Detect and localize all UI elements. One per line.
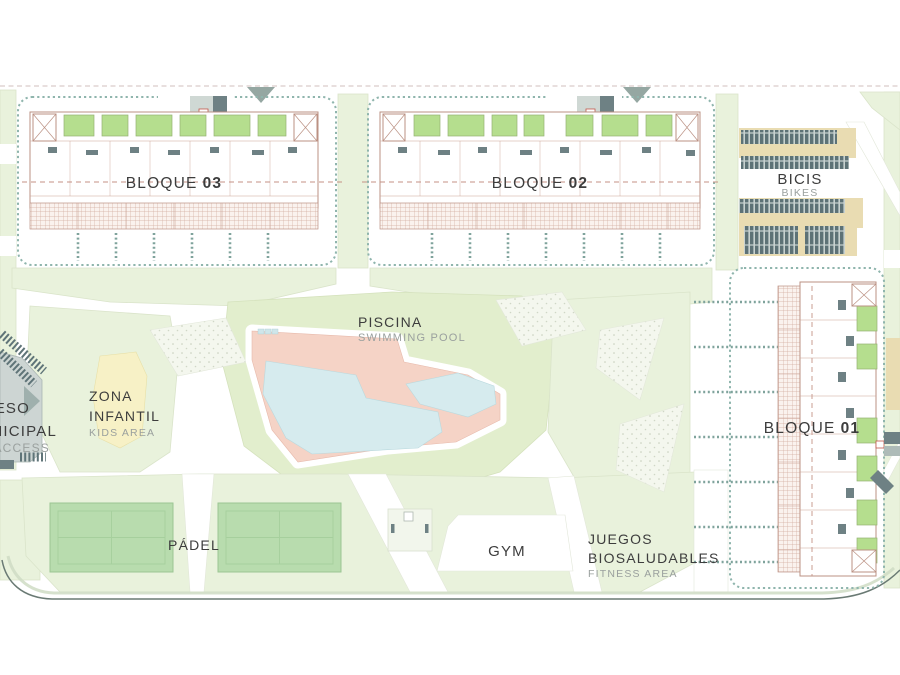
label-padel: PÁDEL <box>168 537 220 553</box>
entrance-core <box>213 96 227 114</box>
equipment-icon <box>425 524 429 533</box>
label-bloque-02: BLOQUE02 <box>492 175 588 192</box>
lawn-patch <box>338 94 368 268</box>
bike-rack <box>744 226 798 254</box>
fitness-equipment-square <box>388 509 432 551</box>
path-segment <box>0 144 16 164</box>
access-stairs <box>0 460 14 469</box>
lawn-patch <box>716 94 738 270</box>
entry-arrow-icon <box>247 87 275 103</box>
label-kids-line2: INFANTIL <box>89 408 160 424</box>
bike-rack <box>805 226 845 254</box>
side-structure <box>884 446 900 456</box>
bike-rack <box>741 130 837 144</box>
equipment-icon <box>391 524 395 533</box>
site-plan-canvas: BLOQUE03 BLOQUE02 BLOQUE01 BICIS BIKES P… <box>0 0 900 675</box>
label-bloque-03: BLOQUE03 <box>126 175 222 192</box>
side-structure <box>884 432 900 444</box>
side-lane <box>886 338 900 410</box>
patio-row <box>414 115 672 136</box>
label-access-line1: ACCESO <box>0 400 30 417</box>
label-gym: GYM <box>488 543 526 560</box>
label-access-sub: ACCESS <box>0 441 50 455</box>
label-pool-sub: SWIMMING POOL <box>358 332 466 344</box>
label-bikes-title: BICIS <box>777 171 822 188</box>
equipment-icon <box>404 512 413 521</box>
entrance-marker <box>876 441 884 448</box>
pool-steps <box>258 329 278 334</box>
label-fitness-line1: JUEGOS <box>588 531 653 547</box>
label-kids-sub: KIDS AREA <box>89 427 155 439</box>
label-kids-line1: ZONA <box>89 388 133 404</box>
path-segment <box>884 250 900 268</box>
garden-dividers <box>78 233 268 261</box>
path-segment <box>694 470 728 592</box>
path-segment <box>0 236 16 256</box>
lawn-patch <box>860 92 900 130</box>
entrance-core <box>600 96 614 114</box>
label-access-line2: MUNICIPAL <box>0 423 57 440</box>
bike-rack <box>739 199 845 213</box>
label-fitness-line2: BIOSALUDABLES <box>588 550 720 566</box>
entry-arrow-icon <box>623 87 651 103</box>
garden-dividers <box>432 233 660 261</box>
label-bloque-01: BLOQUE01 <box>764 420 860 437</box>
bike-rack <box>741 156 849 169</box>
label-fitness-sub: FITNESS AREA <box>588 568 678 580</box>
label-bikes-sub: BIKES <box>782 187 819 199</box>
site-plan: BLOQUE03 BLOQUE02 BLOQUE01 BICIS BIKES P… <box>0 0 900 675</box>
label-pool-title: PISCINA <box>358 314 422 330</box>
